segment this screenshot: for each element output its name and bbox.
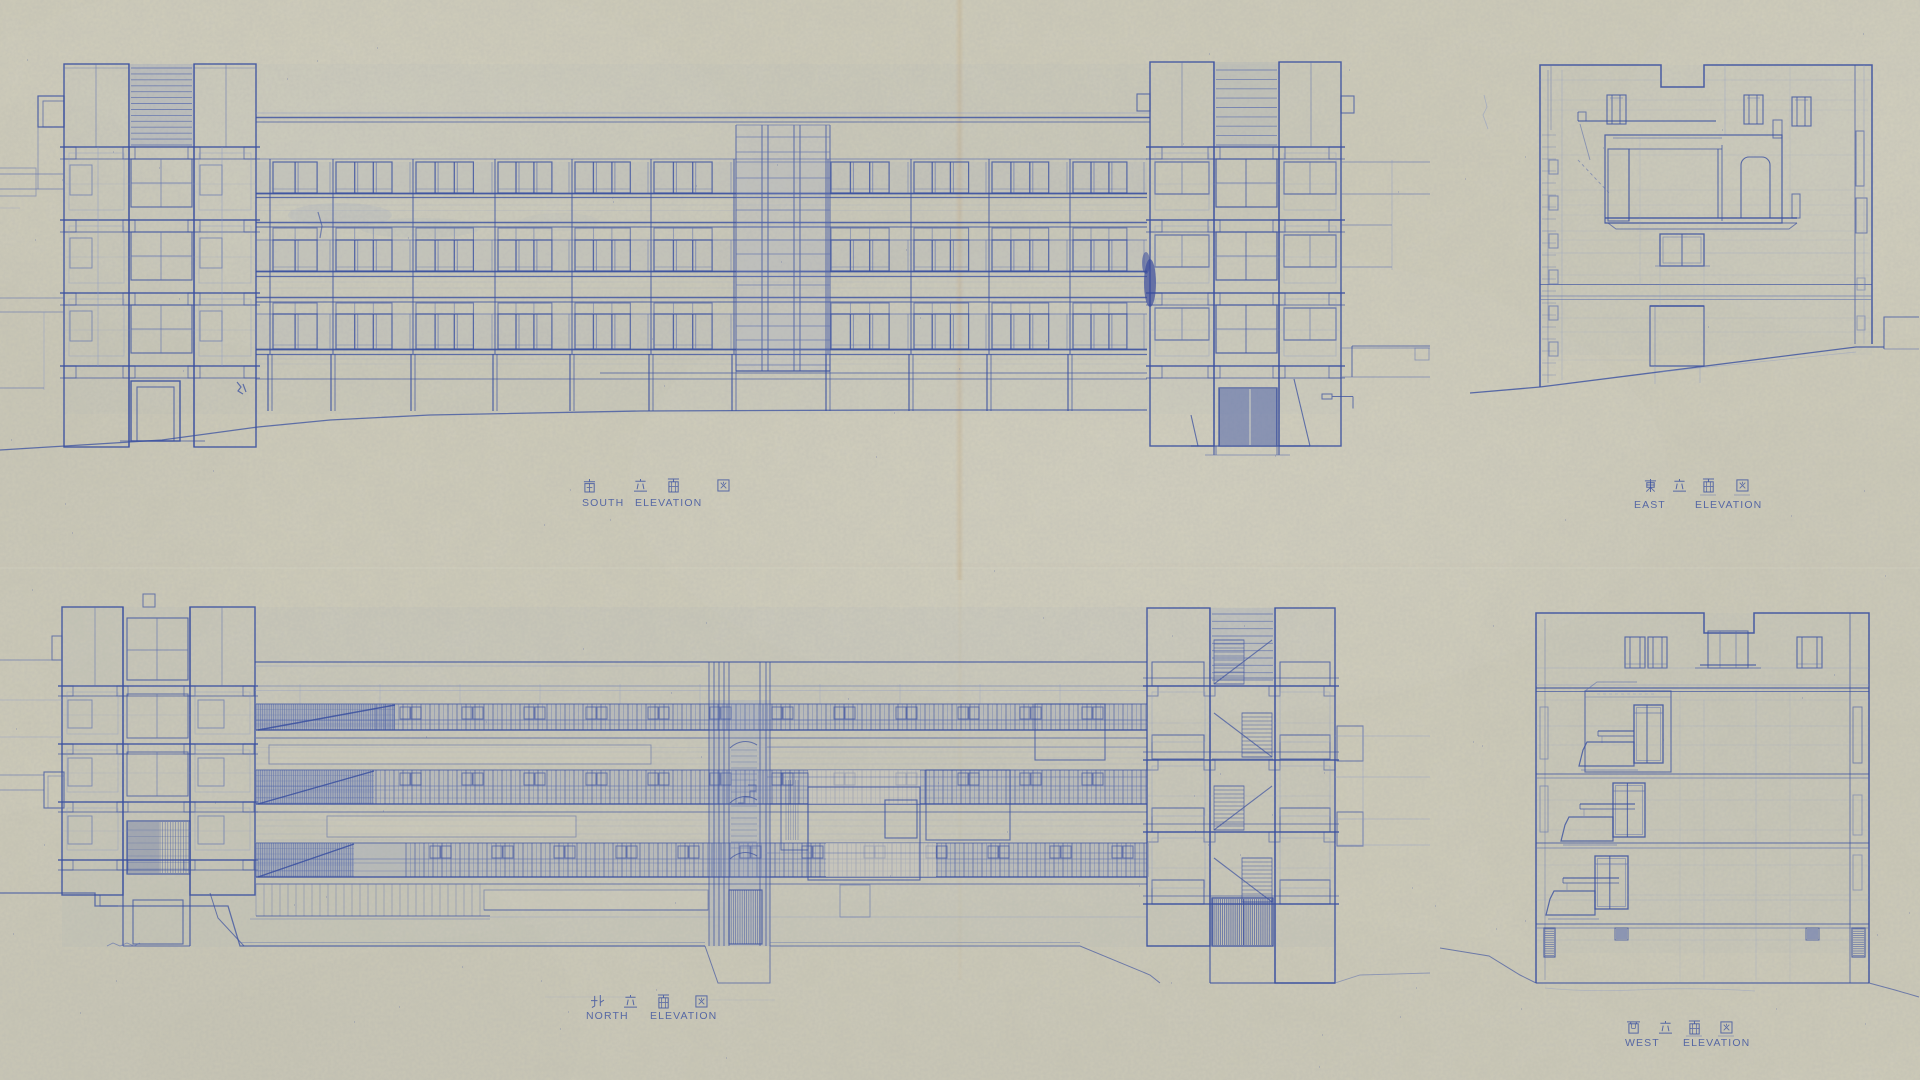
svg-text:ELEVATION: ELEVATION <box>1695 499 1762 511</box>
svg-text:ELEVATION: ELEVATION <box>650 1010 717 1022</box>
svg-text:NORTH: NORTH <box>586 1010 629 1022</box>
svg-text:SOUTH: SOUTH <box>582 497 624 509</box>
svg-text:EAST: EAST <box>1634 499 1666 511</box>
svg-text:ELEVATION: ELEVATION <box>1683 1037 1750 1049</box>
svg-text:WEST: WEST <box>1625 1037 1660 1049</box>
svg-text:ELEVATION: ELEVATION <box>635 497 702 509</box>
